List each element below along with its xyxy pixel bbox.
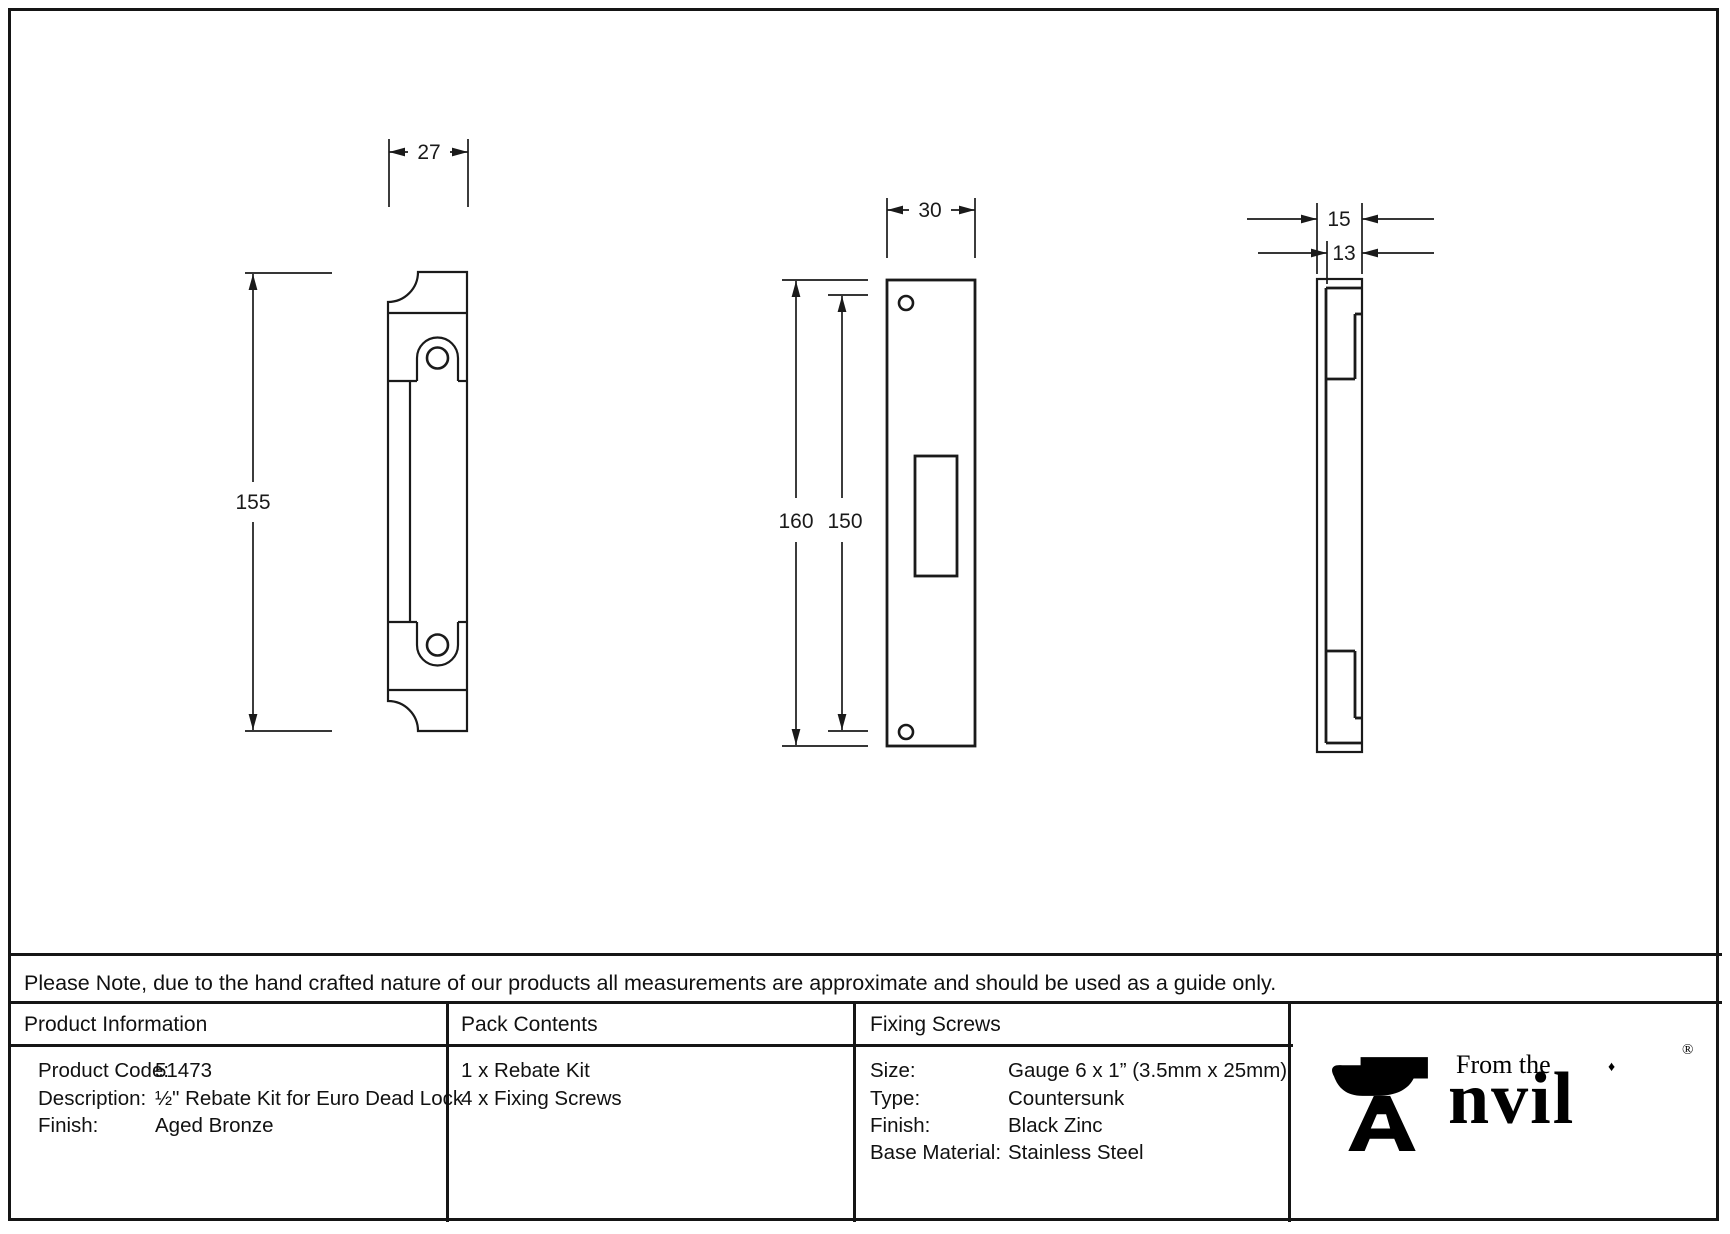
pack-contents-item: 4 x Fixing Screws — [461, 1087, 622, 1111]
column-rule-1 — [446, 1001, 449, 1222]
screw-material-label: Base Material: — [870, 1141, 1001, 1165]
screw-finish-label: Finish: — [870, 1114, 930, 1138]
screw-finish-value: Black Zinc — [1008, 1114, 1103, 1138]
product-code-value: 51473 — [155, 1059, 212, 1083]
header-fixing-screws: Fixing Screws — [870, 1013, 1001, 1037]
description-label: Description: — [38, 1087, 146, 1111]
diamond-icon: ♦ — [1608, 1058, 1615, 1074]
finish-label: Finish: — [38, 1114, 98, 1138]
anvil-icon — [1316, 1052, 1448, 1154]
from-the-anvil-logo: From the ♦ nvil ® — [1316, 1046, 1716, 1158]
screw-size-value: Gauge 6 x 1” (3.5mm x 25mm) — [1008, 1059, 1287, 1083]
measurement-note: Please Note, due to the hand crafted nat… — [24, 971, 1276, 996]
page-border — [8, 8, 1719, 1221]
screw-type-label: Type: — [870, 1087, 920, 1111]
note-row-top-rule — [8, 953, 1722, 956]
product-datasheet: 27 155 — [0, 0, 1730, 1234]
screw-material-value: Stainless Steel — [1008, 1141, 1144, 1165]
pack-contents-item: 1 x Rebate Kit — [461, 1059, 590, 1083]
product-code-label: Product Code: — [38, 1059, 169, 1083]
table-top-rule — [8, 1001, 1722, 1004]
finish-value: Aged Bronze — [155, 1114, 274, 1138]
column-rule-2 — [853, 1001, 856, 1222]
screw-type-value: Countersunk — [1008, 1087, 1124, 1111]
table-header-rule — [8, 1044, 1293, 1047]
column-rule-3 — [1288, 1001, 1291, 1222]
screw-size-label: Size: — [870, 1059, 916, 1083]
registered-trademark-icon: ® — [1682, 1042, 1693, 1059]
header-product-information: Product Information — [24, 1013, 207, 1037]
header-pack-contents: Pack Contents — [461, 1013, 598, 1037]
logo-brand-text: nvil — [1448, 1062, 1575, 1136]
description-value: ½" Rebate Kit for Euro Dead Lock — [155, 1087, 463, 1111]
